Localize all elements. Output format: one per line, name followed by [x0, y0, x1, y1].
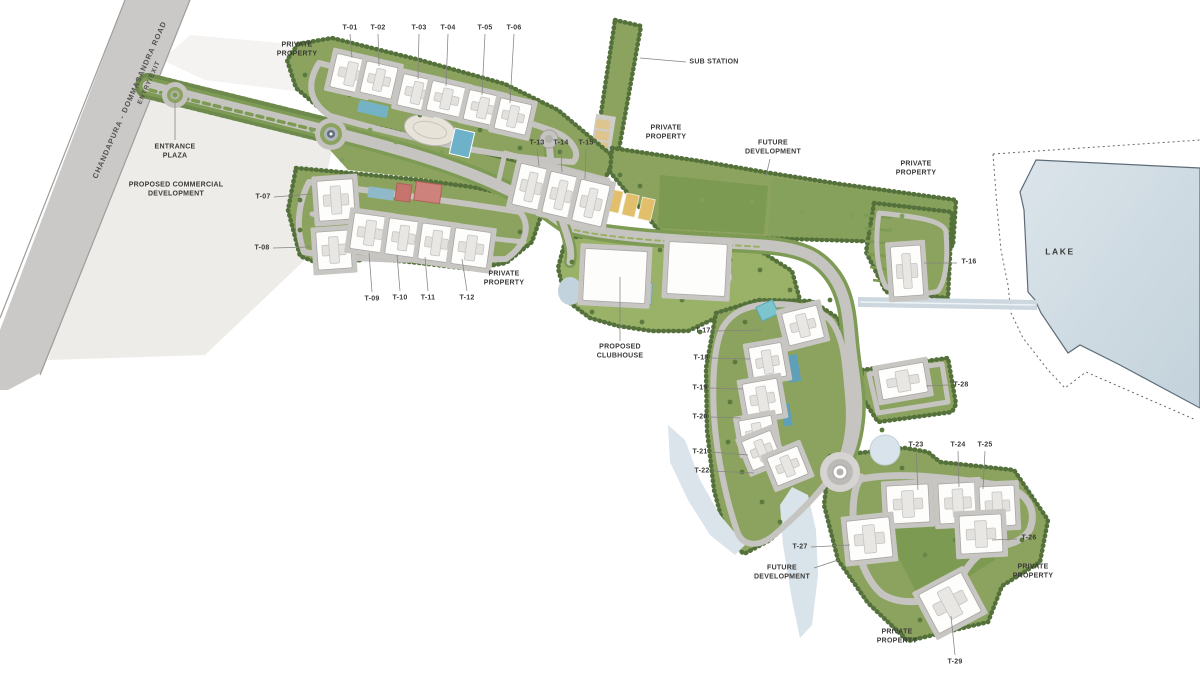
building: [661, 236, 732, 301]
internal-roundabout: [315, 118, 347, 150]
lake: [1020, 160, 1200, 408]
leader-future-development-south: [814, 560, 838, 568]
school-block-a: [395, 183, 412, 202]
south-roundabout: [820, 452, 860, 492]
building: [885, 240, 929, 303]
leader-sub-station: [640, 58, 686, 62]
site-plan-drawing: [0, 0, 1200, 700]
building: [577, 243, 652, 309]
junction-circle: [540, 130, 558, 148]
building: [841, 511, 899, 566]
building: [445, 222, 497, 274]
master-plan-canvas: CHANDAPURA - DOMMASANDRA ROADENTRY/EXITE…: [0, 0, 1200, 700]
school-block-b: [414, 181, 442, 203]
building: [954, 509, 1008, 560]
pond-circle: [870, 435, 900, 465]
